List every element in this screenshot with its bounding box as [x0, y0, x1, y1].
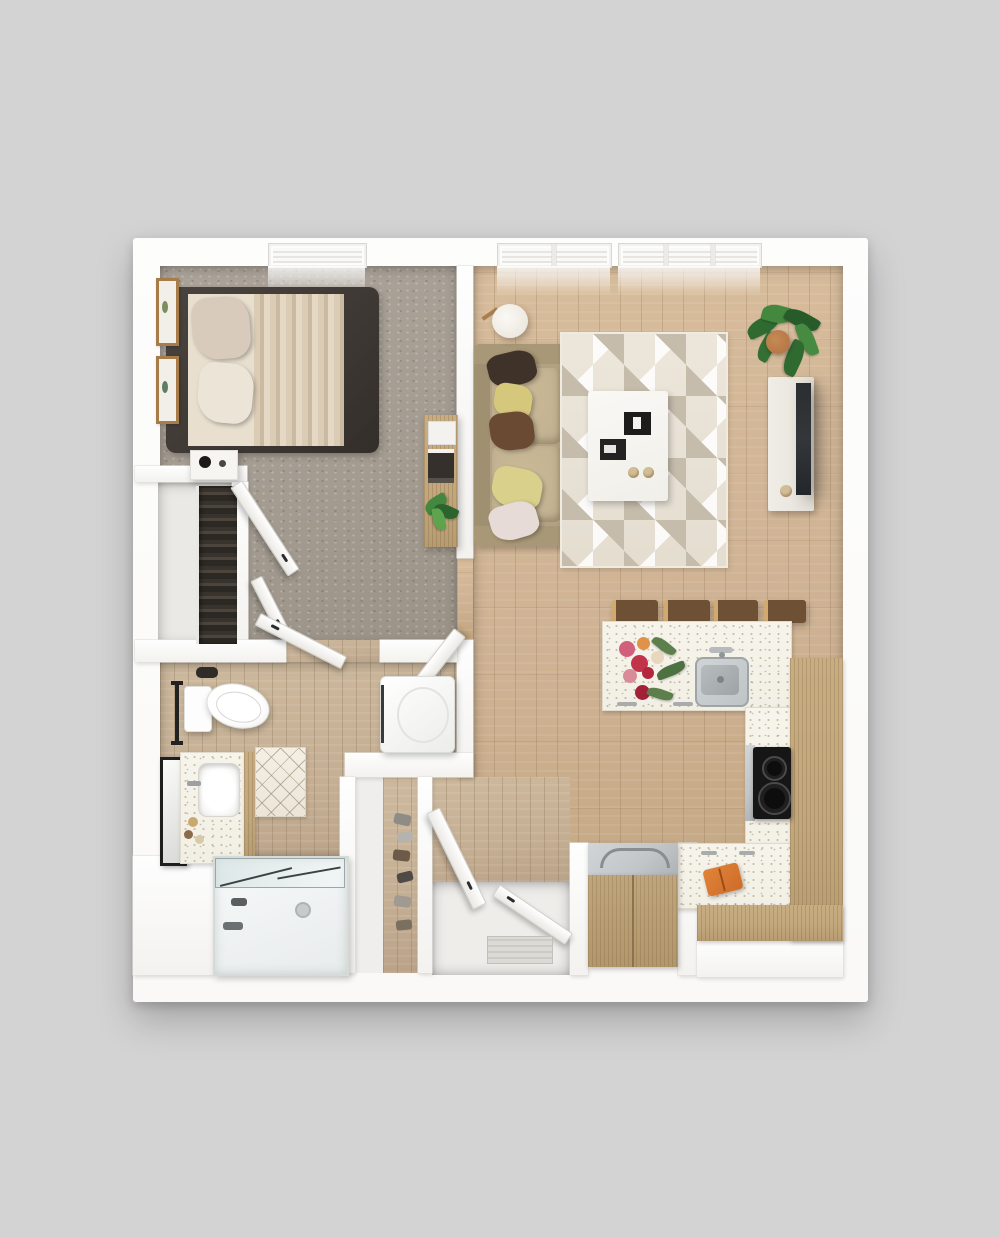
- cooktop-burner: [762, 756, 787, 781]
- cabinet-handle: [673, 702, 693, 706]
- washer-door-ring: [397, 687, 449, 743]
- door-mat: [487, 936, 553, 964]
- window-blinds: [623, 248, 757, 263]
- refrigerator-top: [588, 843, 678, 875]
- island-flower: [637, 637, 650, 650]
- vanity-sink: [198, 763, 240, 817]
- desk-book: [428, 449, 454, 483]
- coffee-table: [588, 391, 668, 501]
- cabinet-handle: [701, 851, 717, 855]
- console-knob: [780, 485, 792, 497]
- plant-pot: [766, 330, 790, 354]
- living-window-1: [497, 243, 612, 268]
- floor-lamp-shade: [492, 304, 528, 338]
- desk-tray: [428, 421, 456, 445]
- window-mullion: [552, 244, 556, 267]
- wall-bathroom-entry: [345, 753, 473, 777]
- serving-tray: [600, 439, 626, 460]
- wall-tub-block: [133, 856, 213, 975]
- tub-drain: [295, 902, 311, 918]
- bed-pillow: [195, 361, 255, 426]
- vanity-cabinet-edge: [244, 752, 255, 862]
- cabinet-handle: [617, 702, 637, 706]
- tray-item: [633, 417, 641, 429]
- vanity-counter: [180, 752, 246, 864]
- vanity-flower: [195, 835, 204, 844]
- window-light: [497, 266, 610, 296]
- tv: [796, 383, 811, 495]
- door-handle: [281, 553, 288, 562]
- serving-tray: [624, 412, 651, 435]
- island-flower: [651, 651, 664, 664]
- bed-blanket: [254, 294, 344, 446]
- wall-kitchen-corner: [697, 941, 843, 977]
- cooktop-burner: [758, 782, 791, 815]
- wall-entry-right: [570, 843, 588, 975]
- vanity-flower: [188, 817, 198, 827]
- bed: [166, 287, 379, 453]
- decor-bottle: [219, 460, 226, 467]
- art-motif: [162, 381, 168, 393]
- vanity-faucet: [187, 781, 201, 786]
- island-flower: [623, 669, 637, 683]
- wall-art-frame: [156, 278, 179, 346]
- tub-faucet: [223, 922, 243, 930]
- sink-drain: [717, 676, 724, 683]
- bar-stool: [612, 600, 658, 623]
- window-light: [618, 266, 760, 296]
- refrigerator-body: [588, 875, 678, 967]
- window-blinds: [273, 248, 362, 263]
- wall-art-frame: [156, 356, 179, 424]
- window-mullion: [711, 244, 715, 267]
- shower-valve: [231, 898, 247, 906]
- bag-seam: [718, 868, 726, 891]
- nightstand: [190, 450, 238, 480]
- wall-bedroom-living-upper: [457, 266, 473, 558]
- bedroom-window: [268, 243, 367, 268]
- door-handle: [466, 881, 473, 890]
- living-window-2: [618, 243, 762, 268]
- kitchen-cabinets-right: [790, 658, 843, 941]
- shoe: [392, 849, 410, 862]
- art-motif: [162, 301, 168, 313]
- window-mullion: [664, 244, 668, 267]
- toilet-flush-button: [196, 667, 218, 678]
- tub-glass-screen: [215, 858, 345, 888]
- closet-wardrobe: [196, 486, 237, 644]
- door-handle: [506, 896, 515, 904]
- door-handle: [270, 624, 279, 631]
- bedroom-console-desk: [424, 415, 458, 547]
- tray-item: [604, 445, 616, 453]
- table-knob: [628, 467, 639, 478]
- cabinet-handle: [739, 851, 755, 855]
- towel-bar-end: [171, 741, 183, 745]
- washer-dryer: [380, 676, 455, 753]
- bar-stool: [664, 600, 710, 623]
- bed-pillow: [190, 295, 252, 361]
- towel-bar-end: [171, 681, 183, 685]
- tv-console: [768, 377, 814, 511]
- bedroom-living-threshold: [457, 558, 473, 640]
- toilet-seat-line: [213, 687, 265, 727]
- wall-shoe-closet-right: [418, 777, 432, 973]
- vanity-flower: [184, 830, 193, 839]
- fridge-door-seam: [632, 875, 634, 967]
- faucet-base: [719, 652, 725, 658]
- washer-hinge: [381, 685, 384, 743]
- bar-stool: [764, 600, 806, 623]
- table-lamp: [199, 456, 211, 468]
- table-knob: [643, 467, 654, 478]
- floor-plan-canvas: [0, 0, 1000, 1238]
- shoe: [393, 895, 411, 908]
- shoe: [396, 919, 413, 931]
- island-flower: [642, 667, 654, 679]
- kitchen-cabinets-bottom: [697, 905, 843, 941]
- kitchen-sink: [695, 657, 749, 707]
- kitchen-island-counter: [602, 621, 792, 711]
- bathtub: [213, 856, 349, 976]
- island-flower: [619, 641, 635, 657]
- bath-mat: [255, 747, 306, 817]
- bar-stool: [714, 600, 758, 623]
- island-greenery: [646, 685, 674, 703]
- fridge-handle-arc: [600, 848, 670, 868]
- towel-bar: [175, 684, 179, 742]
- cooktop: [753, 747, 791, 819]
